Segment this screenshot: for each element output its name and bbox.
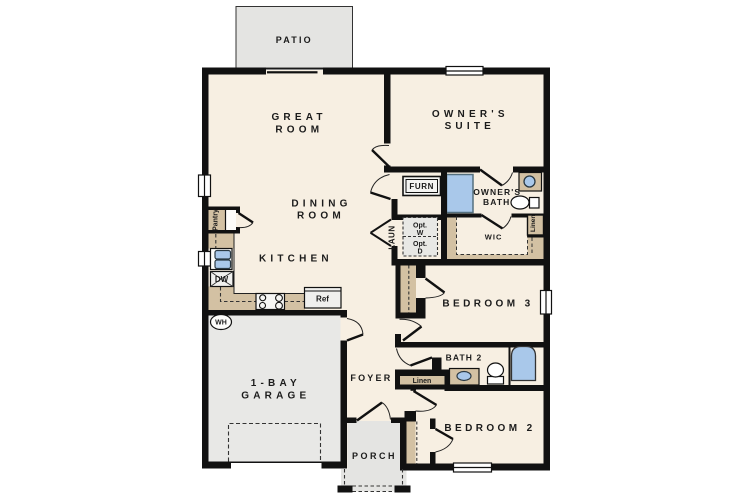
svg-text:LAUN: LAUN <box>388 225 397 249</box>
svg-text:DW: DW <box>215 275 229 284</box>
svg-text:Opt.: Opt. <box>413 241 427 248</box>
svg-text:D: D <box>417 249 422 256</box>
svg-text:Linen: Linen <box>530 215 537 232</box>
svg-text:BEDROOM 2: BEDROOM 2 <box>444 423 535 434</box>
svg-text:OWNER'S: OWNER'S <box>473 187 521 197</box>
svg-text:Pantry: Pantry <box>213 209 220 231</box>
svg-text:Linen: Linen <box>413 378 432 385</box>
svg-text:ROOM: ROOM <box>297 210 345 221</box>
svg-text:Opt.: Opt. <box>413 222 427 229</box>
svg-text:DINING: DINING <box>291 198 351 209</box>
svg-text:FURN: FURN <box>409 182 434 191</box>
svg-text:FOYER: FOYER <box>350 373 392 383</box>
svg-text:PORCH: PORCH <box>352 451 397 461</box>
svg-text:BATH 2: BATH 2 <box>446 352 483 362</box>
svg-text:WIC: WIC <box>485 233 503 242</box>
svg-text:PATIO: PATIO <box>276 35 313 45</box>
svg-text:GARAGE: GARAGE <box>241 391 310 402</box>
svg-text:GREAT: GREAT <box>271 112 326 123</box>
svg-text:BEDROOM 3: BEDROOM 3 <box>442 299 533 310</box>
svg-text:Ref: Ref <box>316 294 329 303</box>
svg-text:BATH: BATH <box>483 197 510 207</box>
svg-text:ROOM: ROOM <box>275 124 323 135</box>
svg-text:SUITE: SUITE <box>445 121 495 132</box>
svg-text:1-BAY: 1-BAY <box>251 378 301 389</box>
svg-text:OWNER'S: OWNER'S <box>432 109 509 120</box>
svg-text:KITCHEN: KITCHEN <box>259 253 333 264</box>
svg-text:WH: WH <box>215 320 227 327</box>
